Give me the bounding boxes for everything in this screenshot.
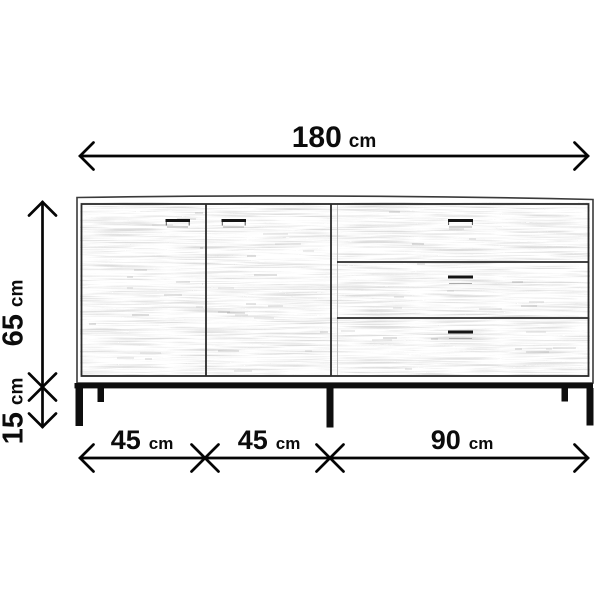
svg-text:45cm: 45cm bbox=[238, 425, 301, 455]
svg-text:65cm: 65cm bbox=[0, 280, 30, 347]
svg-text:90cm: 90cm bbox=[431, 425, 494, 455]
svg-text:45cm: 45cm bbox=[111, 425, 174, 455]
svg-text:15cm: 15cm bbox=[0, 378, 30, 445]
svg-text:180cm: 180cm bbox=[292, 121, 377, 154]
